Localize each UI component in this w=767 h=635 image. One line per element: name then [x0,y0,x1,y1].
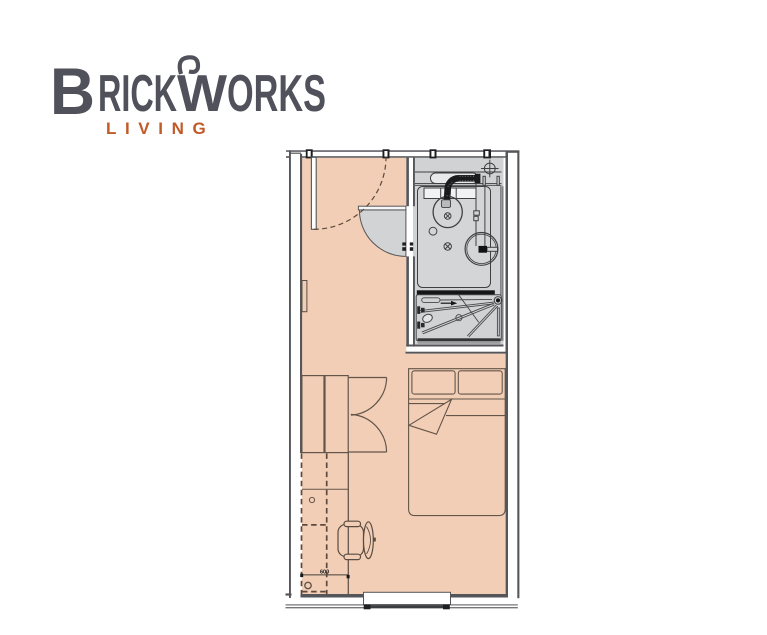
svg-text:B: B [50,54,95,128]
svg-text:ORKS: ORKS [227,65,326,123]
svg-text:LIVING: LIVING [106,119,214,138]
svg-text:W: W [177,65,228,123]
svg-text:RICK: RICK [98,65,177,123]
svg-text:600: 600 [320,570,329,576]
